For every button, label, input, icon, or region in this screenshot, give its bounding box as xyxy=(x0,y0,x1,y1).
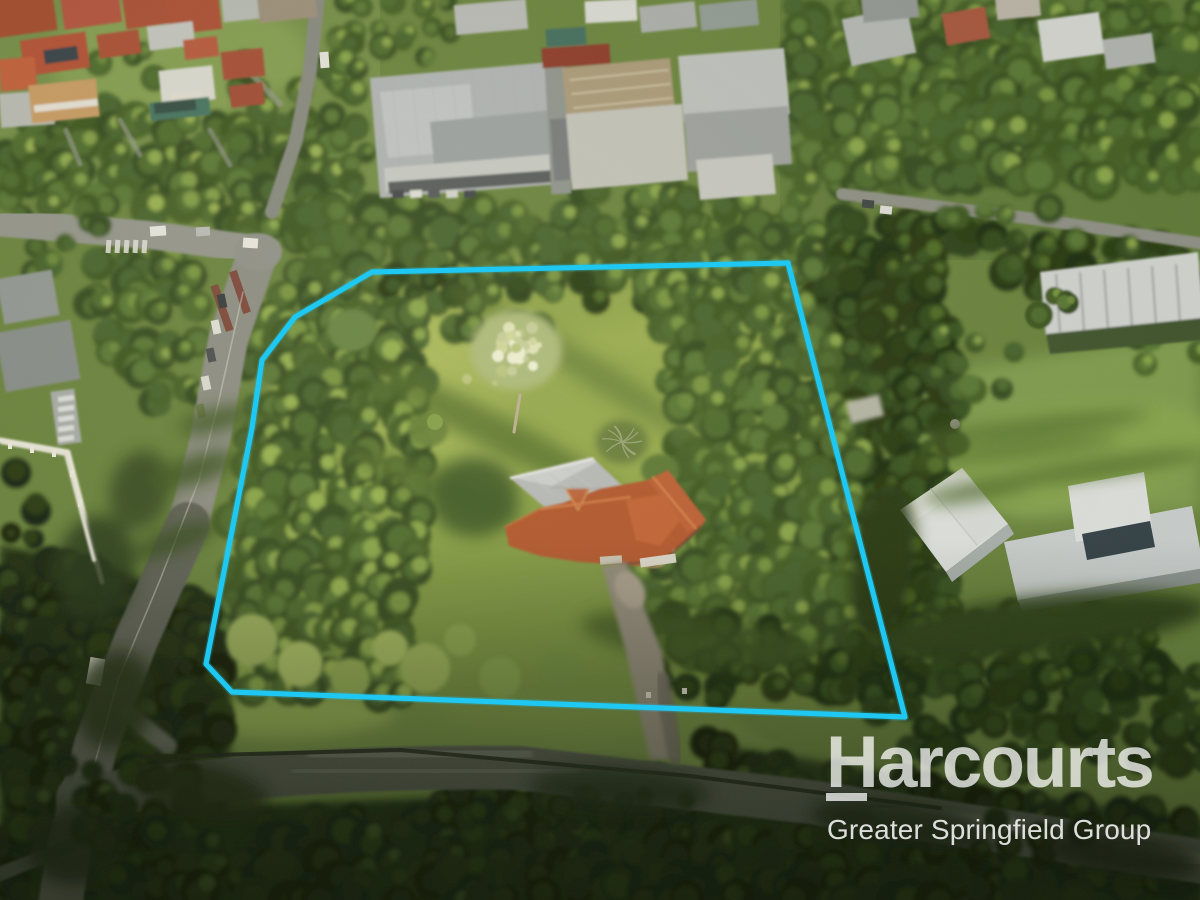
svg-text:Harcourts: Harcourts xyxy=(826,722,1153,803)
svg-text:Greater Springfield Group: Greater Springfield Group xyxy=(827,814,1151,845)
